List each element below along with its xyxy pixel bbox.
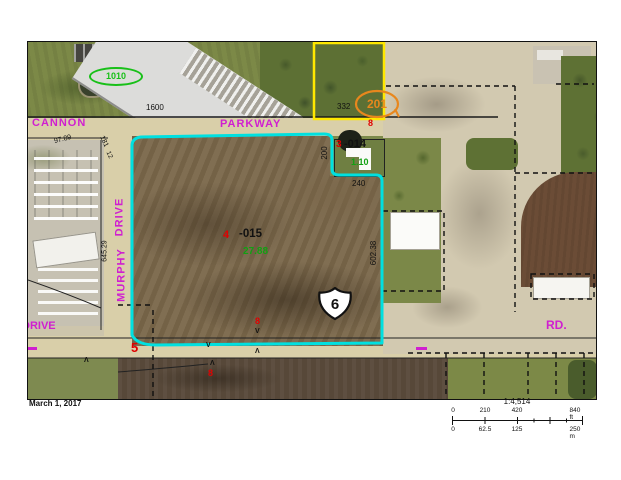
magenta-road-tick-west	[28, 347, 37, 350]
street-label-rd: RD.	[546, 319, 567, 331]
dim-645-29: 645.29	[102, 240, 109, 261]
red-8-north: 8	[368, 119, 373, 128]
address-oval-1010: 1010	[89, 67, 143, 86]
parcel-015-acres: 27.88	[243, 247, 268, 257]
magenta-road-tick-east	[416, 347, 427, 350]
lot-332: 332	[337, 103, 350, 111]
scale-m-62: 62.5	[479, 426, 492, 433]
street-label-parkway: PARKWAY	[220, 119, 281, 130]
survey-mark: Λ	[84, 357, 89, 364]
parcel-014-number: -014	[344, 139, 366, 150]
scale-m-250: 250 m	[570, 426, 585, 440]
route-number: 6	[331, 296, 339, 313]
map-export-page: CANNON PARKWAY DRIVE MURPHY RD. DRIVE 10…	[0, 0, 621, 480]
oval-201-number: 201	[367, 98, 387, 110]
us-route-6-shield: 6	[317, 286, 353, 321]
parcel-015-number: -015	[239, 229, 262, 241]
survey-mark: Λ	[210, 360, 215, 367]
scale-ft-210: 210	[480, 407, 491, 414]
street-label-drive: DRIVE	[115, 198, 126, 237]
scale-ft-420: 420	[512, 407, 523, 414]
street-label-cannon: CANNON	[32, 118, 86, 129]
scale-ft-0: 0	[451, 407, 455, 414]
map-date: March 1, 2017	[29, 399, 81, 408]
street-label-drive-west: DRIVE	[27, 321, 56, 332]
scale-m-125: 125	[512, 426, 523, 433]
parcel-014-acres: 1.10	[351, 158, 369, 167]
red-8-south: 8	[208, 369, 213, 378]
red-5: 5	[131, 341, 138, 354]
survey-mark: Λ	[255, 348, 260, 355]
survey-mark: V	[255, 328, 260, 335]
parcel-015-red4: 4	[223, 230, 229, 241]
map-canvas[interactable]: CANNON PARKWAY DRIVE MURPHY RD. DRIVE 10…	[27, 41, 597, 400]
dim-602-38: 602.38	[370, 241, 378, 265]
dim-1600: 1600	[146, 104, 164, 112]
dim-240: 240	[352, 180, 365, 188]
survey-mark: V	[206, 342, 211, 349]
parcel-014-red3: 3	[336, 140, 342, 150]
street-label-murphy: MURPHY	[117, 248, 128, 302]
red-8-field: 8	[255, 317, 260, 326]
scale-bar-ticks	[452, 416, 592, 425]
scale-bar: 0 210 420 840 ft 0 62.5 125 250 m	[452, 407, 592, 435]
scale-m-0: 0	[451, 426, 455, 433]
dim-200: 200	[321, 146, 329, 159]
route-shield-icon: 6	[317, 286, 353, 321]
